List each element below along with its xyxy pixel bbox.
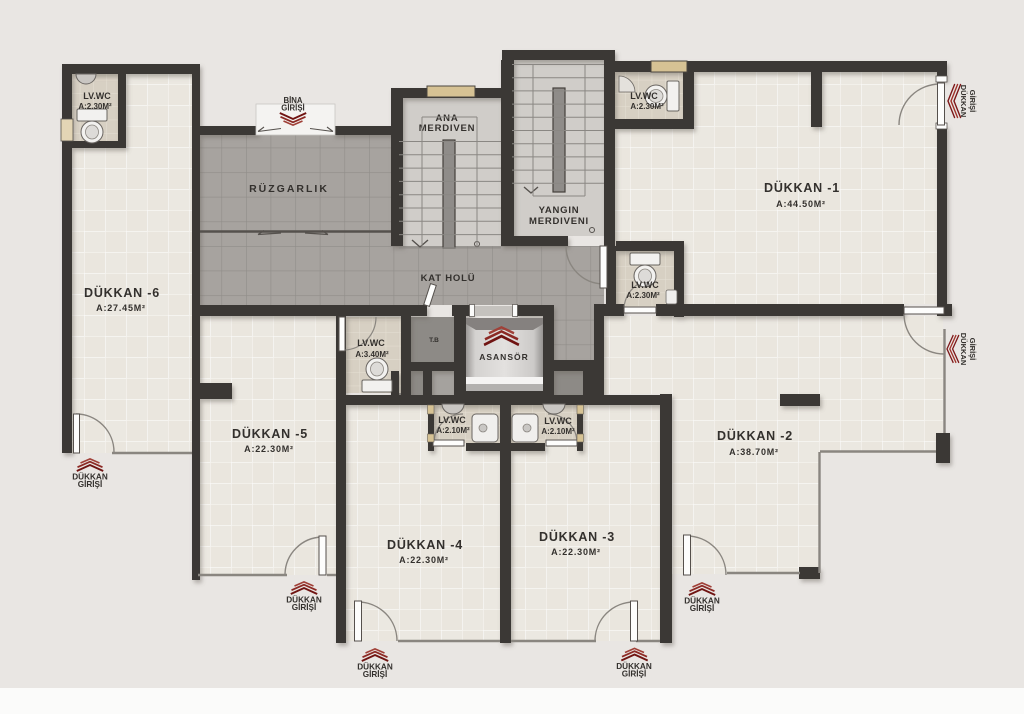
svg-text:GİRİŞİ: GİRİŞİ (622, 669, 647, 679)
svg-text:DÜKKAN -6: DÜKKAN -6 (84, 285, 160, 300)
svg-text:GİRİŞİ: GİRİŞİ (78, 479, 103, 489)
svg-text:GİRİŞİ: GİRİŞİ (968, 338, 977, 361)
svg-text:DÜKKAN -1: DÜKKAN -1 (764, 180, 840, 195)
svg-text:GİRİŞİ: GİRİŞİ (363, 669, 388, 679)
svg-text:GİRİŞİ: GİRİŞİ (281, 104, 304, 113)
svg-text:RÜZGARLIK: RÜZGARLIK (249, 182, 329, 195)
svg-text:YANGIN: YANGIN (539, 205, 580, 216)
svg-text:LV.WC: LV.WC (544, 416, 572, 426)
svg-text:LV.WC: LV.WC (438, 415, 466, 425)
svg-text:DÜKKAN -2: DÜKKAN -2 (717, 428, 793, 443)
svg-text:A:44.50M²: A:44.50M² (776, 199, 826, 209)
svg-text:KAT HOLÜ: KAT HOLÜ (421, 273, 476, 284)
svg-text:A:2.10M²: A:2.10M² (541, 427, 575, 436)
svg-text:GİRİŞİ: GİRİŞİ (968, 90, 977, 113)
svg-text:LV.WC: LV.WC (631, 280, 659, 290)
svg-text:A:22.30M²: A:22.30M² (551, 547, 601, 557)
svg-text:DÜKKAN: DÜKKAN (959, 85, 968, 118)
svg-text:A:2.10M²: A:2.10M² (436, 426, 470, 435)
svg-text:DÜKKAN -4: DÜKKAN -4 (387, 537, 463, 552)
svg-text:DÜKKAN -5: DÜKKAN -5 (232, 426, 308, 441)
svg-text:LV.WC: LV.WC (630, 91, 658, 101)
svg-text:MERDIVEN: MERDIVEN (419, 123, 476, 134)
svg-text:A:22.30M²: A:22.30M² (399, 555, 449, 565)
svg-text:GİRİŞİ: GİRİŞİ (292, 602, 317, 612)
svg-text:DÜKKAN: DÜKKAN (959, 333, 968, 366)
svg-text:A:2.30M²: A:2.30M² (78, 102, 112, 111)
svg-text:ASANSÖR: ASANSÖR (479, 352, 529, 362)
svg-text:LV.WC: LV.WC (83, 91, 111, 101)
svg-text:A:3.40M²: A:3.40M² (355, 350, 389, 359)
svg-text:MERDIVENI: MERDIVENI (529, 216, 589, 227)
svg-text:A:2.30M²: A:2.30M² (630, 102, 664, 111)
svg-text:LV.WC: LV.WC (357, 338, 385, 348)
svg-text:GİRİŞİ: GİRİŞİ (690, 603, 715, 613)
svg-text:A:38.70M²: A:38.70M² (729, 447, 779, 457)
svg-text:DÜKKAN -3: DÜKKAN -3 (539, 529, 615, 544)
svg-text:A:2.30M²: A:2.30M² (626, 291, 660, 300)
svg-text:A:22.30M²: A:22.30M² (244, 444, 294, 454)
svg-text:T.B: T.B (429, 337, 439, 344)
svg-text:A:27.45M²: A:27.45M² (96, 303, 146, 313)
